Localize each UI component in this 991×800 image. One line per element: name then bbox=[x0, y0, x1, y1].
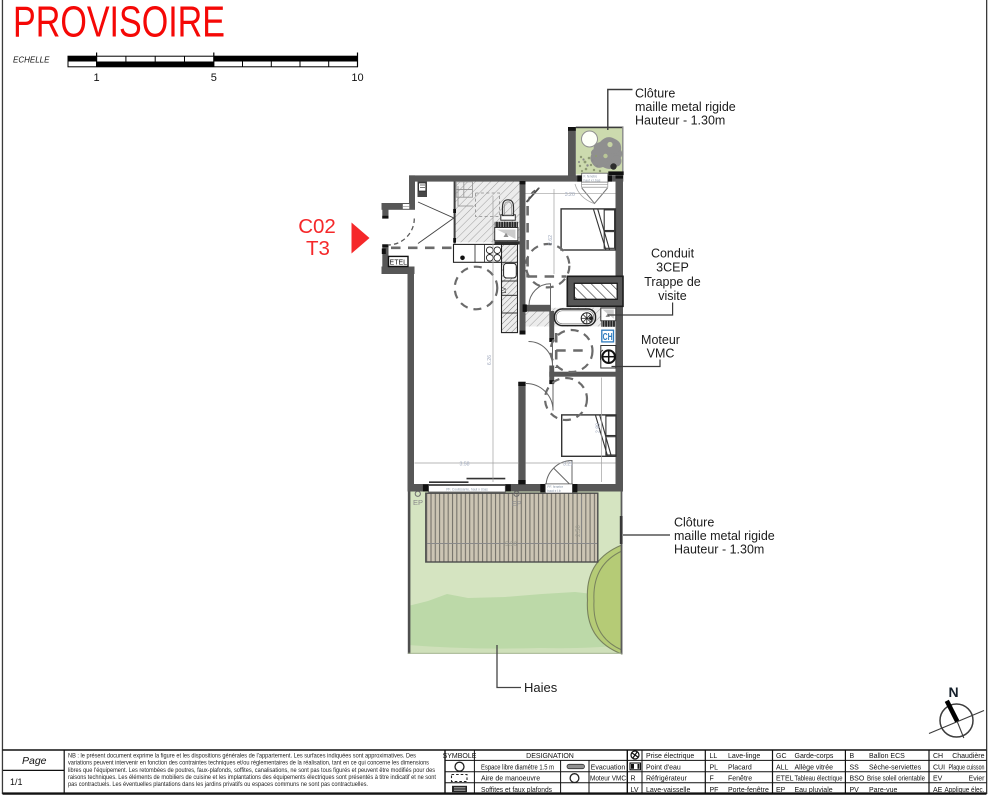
svg-text:variations peuvent intervenir: variations peuvent intervenir en fonctio… bbox=[68, 760, 429, 767]
svg-text:Porte-fenêtre: Porte-fenêtre bbox=[728, 787, 769, 794]
svg-text:Tableau électrique: Tableau électrique bbox=[795, 776, 843, 783]
svg-text:LL: LL bbox=[710, 753, 718, 760]
svg-text:ETEL: ETEL bbox=[776, 776, 794, 783]
svg-text:3.21: 3.21 bbox=[563, 462, 573, 468]
svg-text:R: R bbox=[631, 776, 636, 783]
svg-text:EV: EV bbox=[933, 776, 943, 783]
svg-text:Hauteur - 1.30m: Hauteur - 1.30m bbox=[674, 543, 764, 557]
svg-text:Moteur VMC: Moteur VMC bbox=[590, 776, 626, 783]
svg-text:PV: PV bbox=[850, 787, 860, 794]
svg-text:BSO: BSO bbox=[850, 776, 865, 783]
svg-text:Clôture: Clôture bbox=[635, 87, 675, 101]
svg-text:SS: SS bbox=[850, 764, 860, 771]
svg-text:AE: AE bbox=[933, 787, 943, 794]
svg-text:Conduit: Conduit bbox=[651, 247, 695, 261]
svg-text:NB : le présent document expri: NB : le présent document exprime la figu… bbox=[68, 752, 416, 759]
svg-text:LV: LV bbox=[502, 287, 508, 294]
svg-text:LV: LV bbox=[631, 787, 639, 794]
svg-text:Espace libre diamétre 1.5 m: Espace libre diamétre 1.5 m bbox=[481, 764, 554, 771]
svg-text:Plaque cuisson: Plaque cuisson bbox=[949, 764, 985, 771]
svg-text:Prise électrique: Prise électrique bbox=[646, 753, 694, 760]
svg-text:2.89: 2.89 bbox=[595, 423, 601, 433]
svg-text:Lave-linge: Lave-linge bbox=[728, 753, 760, 760]
svg-text:2.50: 2.50 bbox=[576, 525, 582, 537]
svg-text:Brise soleil orientable: Brise soleil orientable bbox=[867, 776, 925, 783]
svg-text:EP: EP bbox=[776, 787, 786, 794]
svg-text:VMC: VMC bbox=[647, 347, 675, 361]
svg-text:visite: visite bbox=[658, 289, 687, 303]
svg-text:Sèche-serviettes: Sèche-serviettes bbox=[869, 764, 922, 771]
svg-text:Trappe de: Trappe de bbox=[644, 275, 701, 289]
svg-text:Eau pluviale: Eau pluviale bbox=[795, 787, 833, 794]
svg-text:haut x l.b: haut x l.b bbox=[547, 489, 561, 493]
svg-text:2.62: 2.62 bbox=[548, 235, 554, 245]
svg-text:PROVISOIRE: PROVISOIRE bbox=[13, 0, 225, 47]
svg-text:3.58: 3.58 bbox=[459, 462, 469, 468]
svg-text:Soffites et faux plafonds: Soffites et faux plafonds bbox=[481, 787, 552, 794]
svg-text:GC: GC bbox=[776, 753, 787, 760]
svg-text:Aire de manoeuvre: Aire de manoeuvre bbox=[481, 776, 540, 783]
svg-text:Garde-corps: Garde-corps bbox=[795, 753, 834, 760]
svg-text:Pare-vue: Pare-vue bbox=[869, 787, 898, 794]
svg-text:DESIGNATION: DESIGNATION bbox=[526, 753, 574, 760]
svg-text:C02: C02 bbox=[298, 215, 336, 238]
svg-text:1: 1 bbox=[94, 72, 100, 84]
svg-text:Placard: Placard bbox=[728, 764, 752, 771]
svg-text:pas contractuels. Les éventuel: pas contractuels. Les éventuelles planta… bbox=[68, 781, 368, 788]
svg-text:1/1: 1/1 bbox=[10, 777, 23, 787]
svg-text:6.26: 6.26 bbox=[487, 355, 493, 365]
svg-text:N: N bbox=[948, 684, 958, 700]
svg-text:SYMBOLE: SYMBOLE bbox=[443, 753, 477, 760]
svg-text:Chaudière: Chaudière bbox=[952, 753, 984, 760]
svg-text:raisons techniques. Les élémen: raisons techniques. Les éléments de mobi… bbox=[68, 774, 436, 781]
svg-text:5.50: 5.50 bbox=[505, 542, 517, 548]
svg-text:3CEP: 3CEP bbox=[656, 261, 689, 275]
svg-text:ETEL: ETEL bbox=[390, 260, 408, 267]
svg-text:ALL: ALL bbox=[776, 764, 789, 771]
svg-text:ECHELLE: ECHELLE bbox=[13, 56, 50, 65]
svg-text:Point d'eau: Point d'eau bbox=[646, 764, 681, 771]
svg-text:CH: CH bbox=[603, 332, 613, 343]
svg-text:10: 10 bbox=[351, 72, 363, 84]
svg-text:EP: EP bbox=[413, 498, 423, 507]
svg-text:maille metal rigide: maille metal rigide bbox=[635, 100, 736, 114]
svg-text:3.20: 3.20 bbox=[565, 192, 575, 198]
svg-text:T3: T3 bbox=[306, 237, 330, 260]
svg-text:Lave-vaisselle: Lave-vaisselle bbox=[646, 787, 690, 794]
svg-text:Page: Page bbox=[22, 755, 47, 767]
svg-text:CUI: CUI bbox=[933, 764, 945, 771]
svg-text:Moteur: Moteur bbox=[641, 333, 680, 347]
svg-text:B: B bbox=[850, 753, 855, 760]
svg-text:F: F bbox=[710, 776, 714, 783]
svg-text:Clôture: Clôture bbox=[674, 516, 714, 530]
svg-text:haut x l.bas: haut x l.bas bbox=[584, 178, 601, 182]
svg-text:maille metal rigide: maille metal rigide bbox=[674, 529, 775, 543]
svg-text:Evacuation: Evacuation bbox=[591, 764, 626, 771]
svg-text:PF: PF bbox=[710, 787, 719, 794]
svg-text:Fenêtre: Fenêtre bbox=[728, 776, 752, 783]
svg-text:EP: EP bbox=[512, 499, 522, 508]
svg-text:Evier: Evier bbox=[969, 776, 986, 783]
svg-text:PL: PL bbox=[710, 764, 719, 771]
svg-text:Haies: Haies bbox=[524, 680, 558, 695]
svg-text:5: 5 bbox=[211, 72, 217, 84]
svg-text:PF. Coulissante, haut x l.bas: PF. Coulissante, haut x l.bas bbox=[446, 487, 488, 491]
svg-text:Ballon ECS: Ballon ECS bbox=[869, 753, 905, 760]
svg-text:Allège vitrée: Allège vitrée bbox=[795, 764, 834, 771]
svg-text:CH: CH bbox=[933, 753, 943, 760]
svg-text:Hauteur - 1.30m: Hauteur - 1.30m bbox=[635, 114, 725, 128]
svg-text:Réfrigérateur: Réfrigérateur bbox=[646, 776, 688, 783]
svg-text:Applique élec.: Applique élec. bbox=[945, 787, 985, 794]
svg-text:libres que l'équipement. Les r: libres que l'équipement. Les retombées d… bbox=[68, 767, 435, 774]
